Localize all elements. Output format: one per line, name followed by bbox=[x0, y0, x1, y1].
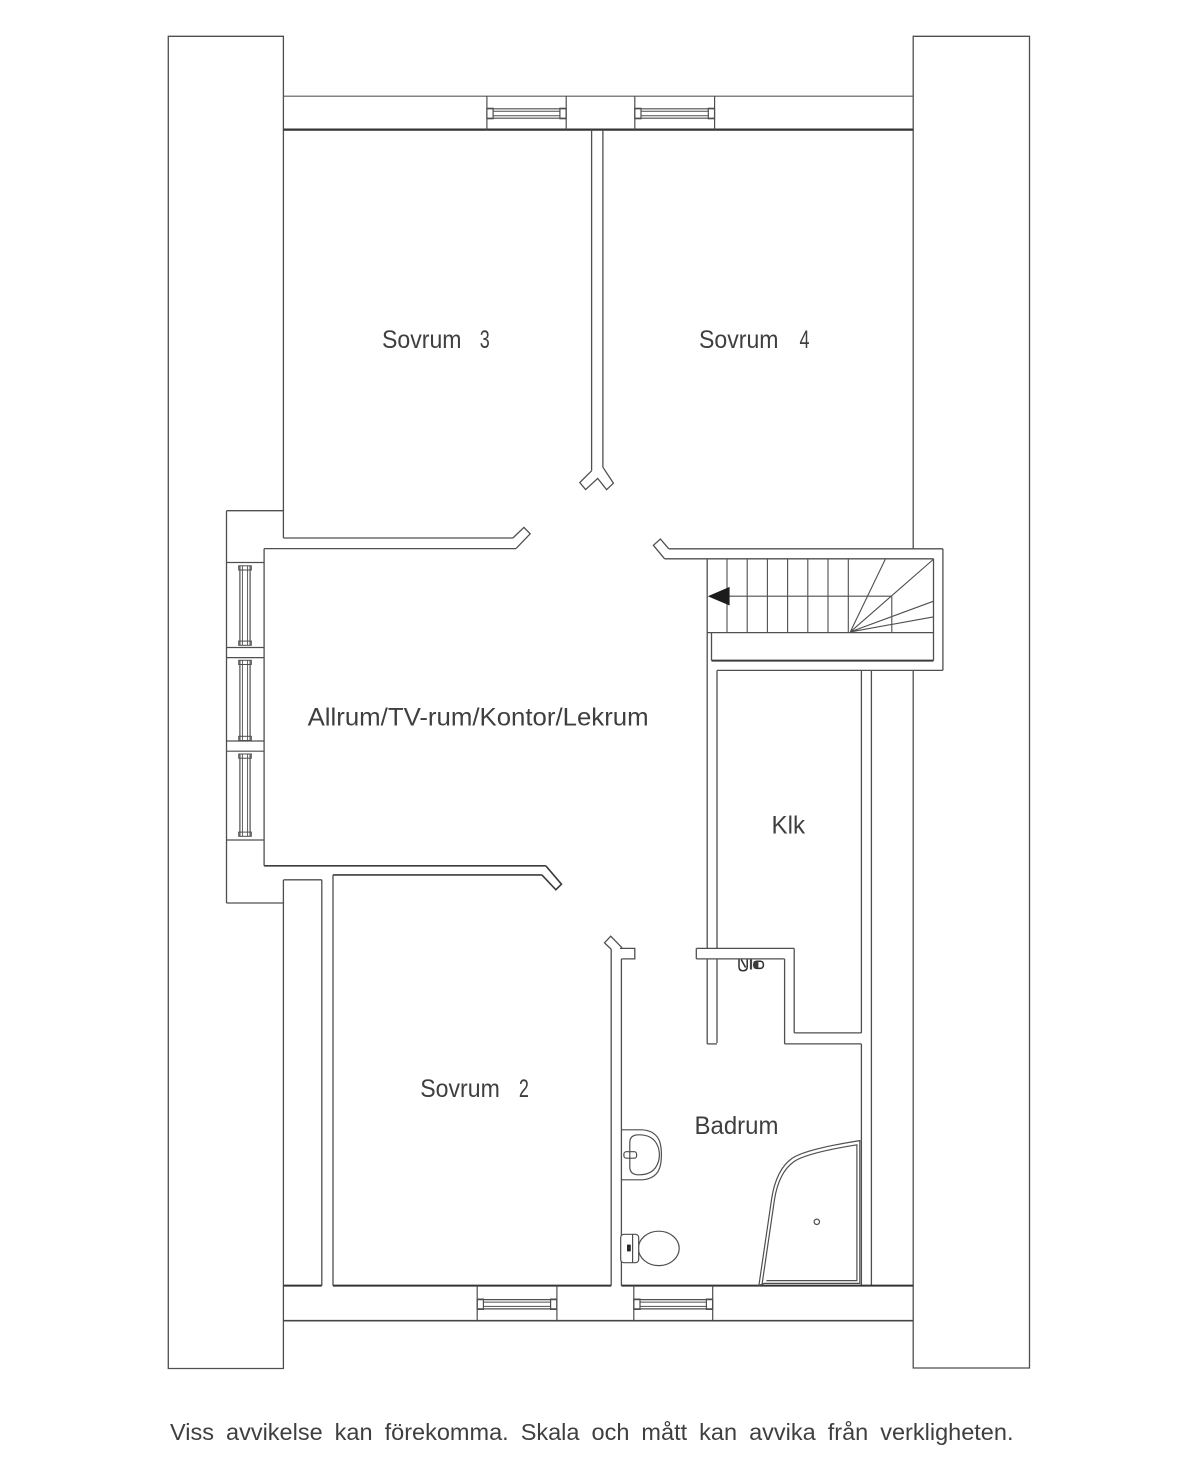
svg-text:3: 3 bbox=[480, 326, 490, 354]
svg-text:Viss avvikelse kan förekomma.: Viss avvikelse kan förekomma. Skala och … bbox=[170, 1419, 1013, 1445]
svg-text:4: 4 bbox=[800, 326, 810, 354]
svg-text:Sovrum: Sovrum bbox=[699, 326, 779, 354]
svg-text:Sovrum: Sovrum bbox=[420, 1075, 500, 1103]
svg-text:Klk: Klk bbox=[772, 812, 806, 840]
svg-text:Sovrum: Sovrum bbox=[382, 326, 462, 354]
svg-text:2: 2 bbox=[519, 1075, 529, 1103]
svg-text:Allrum/TV-rum/Kontor/Lekrum: Allrum/TV-rum/Kontor/Lekrum bbox=[308, 704, 649, 732]
svg-text:Badrum: Badrum bbox=[695, 1112, 779, 1140]
